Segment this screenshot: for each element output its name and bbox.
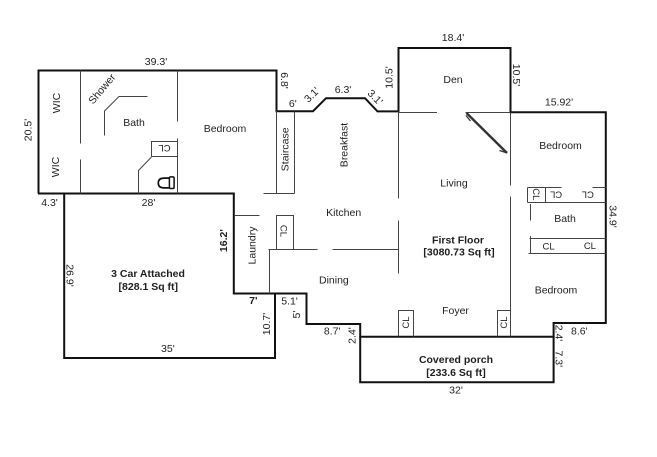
svg-text:7.3': 7.3' bbox=[553, 350, 565, 367]
svg-text:7': 7' bbox=[249, 295, 257, 307]
svg-text:CL: CL bbox=[584, 241, 596, 252]
svg-text:6.3': 6.3' bbox=[335, 84, 352, 96]
svg-text:Bedroom: Bedroom bbox=[204, 123, 247, 135]
svg-text:26.9': 26.9' bbox=[64, 264, 76, 286]
svg-text:CL: CL bbox=[543, 242, 555, 253]
svg-text:8.6': 8.6' bbox=[571, 326, 588, 338]
svg-text:[3080.73 Sq ft]: [3080.73 Sq ft] bbox=[423, 247, 494, 259]
svg-text:CL: CL bbox=[550, 189, 562, 200]
svg-text:WIC: WIC bbox=[50, 156, 62, 177]
svg-text:2.4': 2.4' bbox=[347, 327, 359, 344]
svg-text:WIC: WIC bbox=[51, 92, 63, 113]
svg-text:2.4': 2.4' bbox=[553, 325, 565, 342]
svg-text:35': 35' bbox=[161, 343, 175, 355]
svg-text:Staircase: Staircase bbox=[279, 127, 291, 171]
svg-text:3 Car Attached: 3 Car Attached bbox=[111, 268, 185, 280]
svg-text:10.5': 10.5' bbox=[383, 66, 395, 88]
svg-text:20.5': 20.5' bbox=[23, 119, 35, 141]
svg-text:Breakfast: Breakfast bbox=[338, 123, 350, 167]
svg-text:Covered porch: Covered porch bbox=[419, 354, 493, 366]
svg-text:32': 32' bbox=[449, 385, 463, 397]
svg-text:6': 6' bbox=[289, 98, 297, 110]
svg-text:6.8': 6.8' bbox=[278, 72, 290, 89]
svg-text:39.3': 39.3' bbox=[145, 56, 167, 68]
svg-text:CL: CL bbox=[278, 225, 289, 237]
svg-text:Dining: Dining bbox=[319, 275, 349, 287]
svg-text:CL: CL bbox=[582, 189, 594, 200]
svg-text:Bath: Bath bbox=[554, 213, 576, 225]
svg-text:28': 28' bbox=[142, 197, 156, 209]
svg-text:Den: Den bbox=[443, 74, 462, 86]
svg-text:34.9': 34.9' bbox=[607, 205, 619, 227]
svg-text:10.5': 10.5' bbox=[510, 64, 522, 86]
svg-text:CL: CL bbox=[158, 142, 170, 153]
svg-text:8.7': 8.7' bbox=[324, 326, 341, 338]
svg-text:CL: CL bbox=[530, 188, 541, 200]
svg-text:5': 5' bbox=[291, 311, 303, 319]
svg-text:3.1': 3.1' bbox=[365, 88, 385, 108]
svg-text:18.4': 18.4' bbox=[442, 32, 464, 44]
svg-text:Bath: Bath bbox=[123, 117, 145, 129]
svg-text:Bedroom: Bedroom bbox=[539, 140, 582, 152]
svg-text:CL: CL bbox=[401, 316, 412, 328]
svg-text:10.7': 10.7' bbox=[261, 313, 273, 335]
svg-text:4.3': 4.3' bbox=[41, 197, 58, 209]
svg-text:16.2': 16.2' bbox=[218, 229, 230, 252]
svg-text:CL: CL bbox=[499, 316, 510, 328]
svg-text:Kitchen: Kitchen bbox=[326, 207, 361, 219]
svg-text:Foyer: Foyer bbox=[442, 305, 469, 317]
svg-text:Living: Living bbox=[440, 178, 468, 190]
svg-text:[233.6 Sq ft]: [233.6 Sq ft] bbox=[426, 367, 486, 379]
svg-text:Laundry: Laundry bbox=[246, 226, 258, 265]
svg-text:Bedroom: Bedroom bbox=[535, 285, 578, 297]
svg-text:First Floor: First Floor bbox=[432, 235, 484, 247]
svg-text:15.92': 15.92' bbox=[545, 97, 573, 109]
svg-text:[828.1 Sq ft]: [828.1 Sq ft] bbox=[119, 281, 179, 293]
svg-text:5.1': 5.1' bbox=[281, 296, 298, 308]
svg-text:3.1': 3.1' bbox=[302, 85, 322, 105]
